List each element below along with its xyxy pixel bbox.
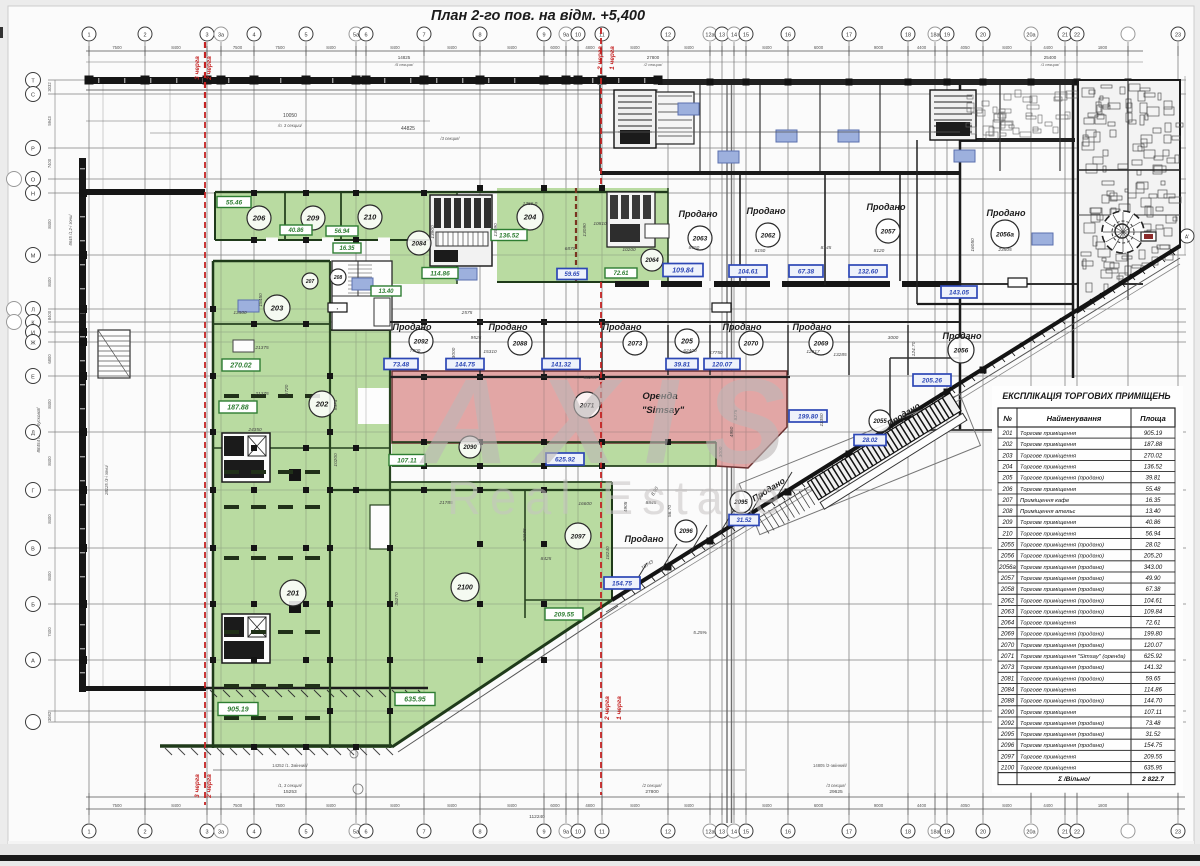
svg-text:Торгове приміщення (продано): Торгове приміщення (продано) — [1020, 554, 1104, 560]
svg-text:13090: 13090 — [493, 223, 499, 237]
svg-text:205.26: 205.26 — [921, 377, 942, 384]
svg-text:31.52: 31.52 — [1145, 732, 1161, 738]
svg-text:3а: 3а — [218, 33, 225, 39]
svg-text:Продано: Продано — [987, 208, 1026, 218]
svg-text:201: 201 — [286, 589, 300, 598]
svg-text:2071: 2071 — [1000, 654, 1014, 660]
svg-text:905.19: 905.19 — [227, 707, 249, 714]
svg-text:6: 6 — [364, 830, 367, 836]
svg-text:4400: 4400 — [1043, 803, 1053, 808]
svg-text:204: 204 — [1001, 464, 1013, 470]
svg-text:8400: 8400 — [630, 803, 640, 808]
svg-text:Торгове приміщення: Торгове приміщення — [1020, 621, 1076, 627]
svg-text:210: 210 — [363, 213, 377, 222]
svg-text:67.38: 67.38 — [1145, 587, 1161, 593]
svg-text:8: 8 — [478, 33, 481, 39]
svg-text:5943: 5943 — [47, 116, 52, 126]
svg-text:27800: 27800 — [645, 789, 659, 795]
svg-text:2: 2 — [143, 830, 146, 836]
svg-text:4400: 4400 — [917, 45, 927, 50]
svg-text:1800: 1800 — [1098, 45, 1108, 50]
svg-text:14805 /2-змінний/: 14805 /2-змінний/ — [813, 763, 848, 768]
svg-text:Г: Г — [32, 488, 35, 494]
svg-text:9000: 9000 — [874, 45, 884, 50]
svg-text:208: 208 — [333, 275, 343, 281]
svg-text:Торгове приміщення "Simsay" (о: Торгове приміщення "Simsay" (оренда) — [1020, 654, 1126, 660]
svg-text:Е: Е — [31, 374, 35, 380]
svg-text:Торгове приміщення (продано): Торгове приміщення (продано) — [1020, 565, 1104, 571]
svg-text:2064: 2064 — [644, 258, 659, 264]
svg-text:10050: 10050 — [283, 113, 297, 119]
svg-text:Торгове приміщення (продано): Торгове приміщення (продано) — [1020, 732, 1104, 738]
svg-text:270.02: 270.02 — [1143, 453, 1163, 459]
svg-text:270.02: 270.02 — [229, 363, 252, 370]
svg-text:11: 11 — [599, 830, 605, 836]
svg-text:№: № — [1003, 414, 1012, 423]
svg-text:8645 /1,2-і зони/: 8645 /1,2-і зони/ — [68, 214, 73, 246]
svg-text:8400: 8400 — [390, 45, 400, 50]
svg-text:3: 3 — [205, 33, 208, 39]
svg-text:40.86: 40.86 — [287, 228, 304, 234]
svg-text:120.07: 120.07 — [1144, 643, 1163, 649]
svg-text:8400: 8400 — [1002, 803, 1012, 808]
svg-text:4: 4 — [252, 33, 255, 39]
svg-text:Продано: Продано — [679, 209, 718, 219]
svg-text:9525: 9525 — [471, 335, 482, 341]
svg-text:Торгове приміщення: Торгове приміщення — [1020, 710, 1076, 716]
svg-text:8400: 8400 — [47, 219, 52, 229]
svg-text:3а: 3а — [218, 830, 225, 836]
svg-text:1 черга: 1 черга — [609, 46, 616, 70]
svg-text:6000: 6000 — [550, 803, 560, 808]
svg-text:А: А — [31, 658, 35, 664]
svg-text:9000: 9000 — [874, 803, 884, 808]
svg-text:3000: 3000 — [888, 335, 899, 341]
svg-text:104.61: 104.61 — [738, 268, 758, 275]
svg-text:3032: 3032 — [47, 82, 52, 92]
svg-text:59.65: 59.65 — [564, 272, 580, 278]
svg-text:2057: 2057 — [1000, 576, 1015, 582]
svg-text:36270: 36270 — [394, 592, 400, 606]
svg-text:20а: 20а — [1026, 33, 1036, 39]
svg-text:18а: 18а — [930, 830, 940, 836]
svg-text:21375: 21375 — [254, 391, 269, 397]
svg-text:Продано: Продано — [393, 322, 432, 332]
svg-text:187.88: 187.88 — [227, 405, 249, 412]
svg-text:635.95: 635.95 — [1144, 766, 1163, 772]
svg-text:203: 203 — [1001, 453, 1013, 459]
svg-text:12а: 12а — [705, 33, 715, 39]
svg-text:5.25%: 5.25% — [693, 630, 707, 636]
svg-text:8400: 8400 — [630, 45, 640, 50]
svg-text:2070: 2070 — [1000, 643, 1015, 649]
svg-text:Б: Б — [31, 602, 35, 608]
svg-text:2055: 2055 — [1000, 543, 1015, 549]
svg-text:Продано: Продано — [747, 206, 786, 216]
svg-text:625.92: 625.92 — [1144, 654, 1163, 660]
svg-text:2063: 2063 — [692, 235, 708, 242]
svg-text:Торгове приміщення: Торгове приміщення — [1020, 520, 1076, 526]
svg-text:2095: 2095 — [1000, 732, 1015, 738]
svg-text:44825: 44825 — [401, 126, 415, 132]
svg-text:2092: 2092 — [1000, 721, 1015, 727]
svg-text:7: 7 — [422, 830, 425, 836]
svg-text:28125 /3-і зони/: 28125 /3-і зони/ — [104, 464, 109, 496]
svg-text:124.70: 124.70 — [911, 341, 917, 356]
svg-text:2088: 2088 — [1000, 699, 1015, 705]
svg-text:1 черга: 1 черга — [616, 696, 623, 720]
svg-text:22335: 22335 — [522, 528, 528, 543]
svg-text:8400: 8400 — [47, 571, 52, 581]
svg-text:201: 201 — [1001, 431, 1012, 437]
svg-text:13285: 13285 — [833, 352, 847, 358]
svg-text:ЕКСПЛІКАЦІЯ ТОРГОВИХ ПРИМІЩЕНЬ: ЕКСПЛІКАЦІЯ ТОРГОВИХ ПРИМІЩЕНЬ — [1002, 391, 1170, 401]
svg-text:55.48: 55.48 — [1145, 487, 1161, 493]
svg-text:7900: 7900 — [410, 348, 421, 354]
svg-text:208: 208 — [1001, 509, 1013, 515]
svg-text:4: 4 — [252, 830, 255, 836]
svg-text:17: 17 — [846, 830, 852, 836]
svg-text:7500: 7500 — [112, 45, 122, 50]
svg-text:13.40: 13.40 — [1145, 509, 1161, 515]
svg-text:2100: 2100 — [1000, 766, 1015, 772]
svg-text:1: 1 — [87, 33, 90, 39]
svg-text:Торгове приміщення (продано): Торгове приміщення (продано) — [1020, 609, 1104, 615]
svg-text:3 черга: 3 черга — [194, 56, 201, 80]
svg-text:107.11: 107.11 — [1144, 710, 1162, 716]
svg-text:73.48: 73.48 — [1145, 721, 1161, 727]
svg-text:4400: 4400 — [917, 803, 927, 808]
svg-text:2056: 2056 — [1000, 554, 1015, 560]
svg-text:2: 2 — [143, 33, 146, 39]
svg-text:104.61: 104.61 — [1144, 598, 1162, 604]
svg-text:9а: 9а — [563, 830, 570, 836]
svg-text:Торгове приміщення: Торгове приміщення — [1020, 531, 1076, 537]
svg-text:207: 207 — [1001, 498, 1013, 504]
svg-text:Приміщення ательє: Приміщення ательє — [1020, 509, 1076, 515]
svg-text:2064: 2064 — [1000, 621, 1015, 627]
svg-text:27800: 27800 — [647, 55, 660, 60]
svg-text:72.61: 72.61 — [1145, 621, 1160, 627]
svg-text:209.55: 209.55 — [1143, 754, 1163, 760]
svg-text:8425: 8425 — [541, 556, 552, 562]
svg-text:Торгове приміщення: Торгове приміщення — [1020, 754, 1076, 760]
svg-text:План 2-го пов. на відм. +5,400: План 2-го пов. на відм. +5,400 — [431, 8, 645, 24]
svg-text:2073: 2073 — [1000, 665, 1015, 671]
svg-text:19: 19 — [944, 33, 950, 39]
svg-text:Р: Р — [31, 146, 35, 152]
svg-text:Торгове приміщення: Торгове приміщення — [1020, 687, 1076, 693]
svg-text:Н: Н — [31, 191, 35, 197]
svg-text:205: 205 — [680, 339, 693, 346]
svg-text:202: 202 — [1001, 442, 1013, 448]
svg-text:6800: 6800 — [47, 354, 52, 364]
svg-text:2069: 2069 — [813, 340, 829, 347]
svg-text:А': А' — [1185, 235, 1189, 241]
svg-text:187.88: 187.88 — [1144, 442, 1163, 448]
svg-text:В: В — [31, 546, 35, 552]
svg-text:Продано: Продано — [625, 534, 664, 544]
svg-text:2 черга: 2 черга — [206, 56, 213, 81]
svg-text:202: 202 — [315, 400, 329, 409]
svg-text:21375: 21375 — [254, 345, 269, 351]
svg-text:Σ /Вільно/: Σ /Вільно/ — [1057, 775, 1091, 783]
svg-text:22: 22 — [1074, 830, 1080, 836]
svg-text:56.94: 56.94 — [334, 229, 350, 235]
svg-text:49.90: 49.90 — [1145, 576, 1161, 582]
svg-text:Торгове приміщення: Торгове приміщення — [1020, 766, 1076, 772]
svg-text:8650: 8650 — [689, 245, 700, 251]
svg-text:4050: 4050 — [960, 45, 970, 50]
svg-text:2097: 2097 — [1000, 754, 1015, 760]
svg-text:13: 13 — [719, 830, 725, 836]
svg-text:8400: 8400 — [447, 803, 457, 808]
svg-text:7: 7 — [422, 33, 425, 39]
svg-text:2057: 2057 — [880, 228, 896, 235]
svg-text:Торгове приміщення (продано): Торгове приміщення (продано) — [1020, 699, 1104, 705]
svg-text:8400: 8400 — [47, 514, 52, 524]
svg-text:Торгове приміщення (продано): Торгове приміщення (продано) — [1020, 576, 1104, 582]
svg-text:154.75: 154.75 — [612, 580, 632, 587]
svg-text:109.84: 109.84 — [672, 268, 694, 275]
svg-text:132.60: 132.60 — [858, 268, 878, 275]
svg-text:15253: 15253 — [283, 789, 297, 795]
svg-text:18240: 18240 — [605, 546, 611, 560]
svg-text:8400: 8400 — [762, 45, 772, 50]
svg-text:114.86: 114.86 — [430, 270, 450, 277]
svg-text:14: 14 — [731, 830, 737, 836]
svg-text:/3 секция/: /3 секция/ — [439, 136, 460, 141]
svg-text:15: 15 — [743, 33, 749, 39]
svg-text:13090: 13090 — [582, 223, 588, 237]
svg-text:12: 12 — [665, 830, 671, 836]
svg-text:154.75: 154.75 — [1144, 743, 1163, 749]
svg-text:905.19: 905.19 — [1144, 431, 1163, 437]
svg-text:8400: 8400 — [47, 456, 52, 466]
svg-text:2090: 2090 — [1000, 710, 1015, 716]
svg-text:/п. 3 секции/: /п. 3 секции/ — [277, 123, 303, 128]
svg-text:О: О — [31, 177, 36, 183]
svg-text:14825: 14825 — [398, 55, 411, 60]
svg-text:67.38: 67.38 — [798, 268, 815, 275]
svg-text:Торгове приміщення: Торгове приміщення — [1020, 464, 1076, 470]
svg-text:1356.0: 1356.0 — [523, 201, 538, 207]
svg-text:/3 секция/: /3 секция/ — [825, 783, 846, 788]
svg-text:10200: 10200 — [333, 453, 339, 467]
svg-text:205: 205 — [1001, 476, 1013, 482]
svg-text:343.00: 343.00 — [1144, 565, 1163, 571]
svg-text:23: 23 — [1175, 830, 1181, 836]
svg-text:72.61: 72.61 — [613, 271, 629, 277]
svg-text:Торгове приміщення (продано): Торгове приміщення (продано) — [1020, 632, 1104, 638]
svg-text:21: 21 — [1062, 33, 1068, 39]
svg-text:Приміщення кафе: Приміщення кафе — [1020, 498, 1070, 504]
svg-text:635.95: 635.95 — [404, 697, 426, 704]
svg-text:59.65: 59.65 — [1145, 676, 1161, 682]
svg-text:2056а: 2056а — [995, 231, 1014, 238]
svg-text:Торгове приміщення: Торгове приміщення — [1020, 487, 1076, 493]
svg-text:8120: 8120 — [874, 248, 885, 254]
svg-text:23505: 23505 — [997, 247, 1012, 253]
svg-text:2081: 2081 — [1000, 676, 1014, 682]
svg-text:16050: 16050 — [970, 238, 976, 252]
svg-text:8400: 8400 — [447, 45, 457, 50]
svg-text:/5 секция/: /5 секция/ — [394, 62, 414, 67]
svg-text:25400: 25400 — [1044, 55, 1057, 60]
svg-text:Продано: Продано — [723, 322, 762, 332]
svg-text:29625: 29625 — [829, 789, 843, 795]
svg-text:4050: 4050 — [960, 803, 970, 808]
svg-text:1: 1 — [87, 830, 90, 836]
svg-text:209.55: 209.55 — [553, 611, 574, 618]
svg-text:4400: 4400 — [1043, 45, 1053, 50]
svg-text:144.70: 144.70 — [1144, 699, 1163, 705]
svg-text:112240: 112240 — [529, 814, 545, 820]
svg-text:Продано: Продано — [867, 202, 906, 212]
svg-text:2097: 2097 — [570, 533, 586, 540]
svg-text:Продано: Продано — [489, 322, 528, 332]
svg-text:13900: 13900 — [430, 225, 436, 239]
svg-text:10: 10 — [575, 33, 581, 39]
svg-text:2056: 2056 — [953, 347, 969, 354]
svg-text:2096: 2096 — [678, 529, 693, 535]
svg-text:39.81: 39.81 — [1145, 476, 1160, 482]
svg-text:3: 3 — [205, 830, 208, 836]
svg-text:205.20: 205.20 — [1143, 554, 1163, 560]
svg-text:207: 207 — [305, 279, 315, 285]
svg-text:7400: 7400 — [47, 158, 52, 168]
svg-text:Торгове приміщення (продано): Торгове приміщення (продано) — [1020, 665, 1104, 671]
svg-text:2084: 2084 — [1000, 687, 1015, 693]
svg-text:199.80: 199.80 — [1144, 632, 1163, 638]
svg-text:10810: 10810 — [593, 221, 607, 227]
svg-text:2 822.7: 2 822.7 — [1141, 776, 1164, 783]
svg-text:/2 секция/: /2 секция/ — [643, 62, 663, 67]
svg-text:7400: 7400 — [47, 627, 52, 637]
svg-text:2062: 2062 — [1000, 598, 1015, 604]
svg-text:15450: 15450 — [258, 293, 264, 307]
svg-text:209: 209 — [1001, 520, 1013, 526]
svg-text:16.35: 16.35 — [1145, 498, 1161, 504]
svg-text:10: 10 — [575, 830, 581, 836]
svg-text:15: 15 — [743, 830, 749, 836]
svg-text:Торгове приміщення (продано): Торгове приміщення (продано) — [1020, 543, 1104, 549]
svg-text:13500: 13500 — [233, 310, 247, 316]
svg-text:12: 12 — [665, 33, 671, 39]
svg-text:Торгове приміщення (продано): Торгове приміщення (продано) — [1020, 476, 1104, 482]
svg-text:7500: 7500 — [275, 45, 285, 50]
svg-text:2056а: 2056а — [998, 565, 1016, 571]
svg-text:6000: 6000 — [814, 803, 824, 808]
svg-text:7500: 7500 — [233, 803, 243, 808]
svg-text:8400: 8400 — [684, 803, 694, 808]
svg-text:3 черга: 3 черга — [194, 774, 201, 798]
svg-text:17: 17 — [846, 33, 852, 39]
svg-text:206: 206 — [252, 214, 266, 223]
svg-text:2070: 2070 — [743, 340, 759, 347]
svg-text:28.02: 28.02 — [861, 438, 878, 444]
svg-text:206: 206 — [1001, 487, 1013, 493]
svg-text:Торгове приміщення (продано): Торгове приміщення (продано) — [1020, 598, 1104, 604]
svg-text:4800: 4800 — [585, 803, 595, 808]
svg-text:14252 /1. Змінний/: 14252 /1. Змінний/ — [272, 763, 308, 768]
svg-text:4800: 4800 — [585, 45, 595, 50]
svg-text:2088: 2088 — [512, 340, 528, 347]
svg-text:/2 секция/: /2 секция/ — [641, 783, 662, 788]
svg-text:6000: 6000 — [814, 45, 824, 50]
svg-text:19: 19 — [944, 830, 950, 836]
svg-text:6870: 6870 — [565, 246, 576, 252]
svg-text:/1, 3 секция/: /1, 3 секция/ — [277, 783, 303, 788]
svg-text:2073: 2073 — [627, 340, 643, 347]
svg-text:22: 22 — [1074, 33, 1080, 39]
svg-text:8400: 8400 — [171, 45, 181, 50]
svg-text:55.46: 55.46 — [226, 199, 243, 206]
svg-text:7500: 7500 — [112, 803, 122, 808]
svg-text:8: 8 — [478, 830, 481, 836]
svg-text:5: 5 — [304, 33, 307, 39]
svg-text:13.40: 13.40 — [378, 289, 394, 295]
svg-text:9: 9 — [542, 830, 545, 836]
svg-text:Ж: Ж — [30, 340, 35, 346]
svg-text:Торгове приміщення (продано): Торгове приміщення (продано) — [1020, 587, 1104, 593]
svg-text:2 черга: 2 черга — [206, 774, 213, 799]
svg-text:2 черга: 2 черга — [604, 696, 611, 721]
svg-text:16: 16 — [785, 830, 791, 836]
svg-text:М: М — [31, 253, 36, 259]
svg-text:13: 13 — [719, 33, 725, 39]
svg-text:114.86: 114.86 — [1144, 687, 1163, 693]
svg-text:20а: 20а — [1026, 830, 1036, 836]
svg-text:204: 204 — [523, 213, 537, 222]
svg-text:8400: 8400 — [326, 45, 336, 50]
svg-text:20: 20 — [980, 830, 986, 836]
svg-text:109.84: 109.84 — [1144, 609, 1163, 615]
svg-text:141.32: 141.32 — [1144, 665, 1163, 671]
svg-text:11: 11 — [599, 33, 605, 39]
svg-text:10200: 10200 — [622, 247, 636, 253]
svg-text:Торгове приміщення (продано): Торгове приміщення (продано) — [1020, 743, 1104, 749]
svg-text:Торгове приміщення (продано): Торгове приміщення (продано) — [1020, 676, 1104, 682]
svg-text:8400: 8400 — [47, 277, 52, 287]
svg-text:5: 5 — [304, 830, 307, 836]
svg-text:8400: 8400 — [507, 45, 517, 50]
svg-text:203: 203 — [270, 304, 284, 313]
svg-text:6: 6 — [364, 33, 367, 39]
svg-text:2575: 2575 — [461, 310, 473, 316]
svg-text:Торгове приміщення (продано): Торгове приміщення (продано) — [1020, 643, 1104, 649]
svg-text:Найменування: Найменування — [1047, 414, 1102, 423]
svg-text:136.52: 136.52 — [1144, 464, 1163, 470]
svg-text:AXIS: AXIS — [419, 353, 812, 489]
svg-text:2092: 2092 — [413, 338, 429, 345]
svg-text:18: 18 — [905, 33, 911, 39]
svg-text:9575: 9575 — [333, 399, 339, 410]
svg-text:8400: 8400 — [171, 803, 181, 808]
svg-text:18а: 18а — [930, 33, 940, 39]
svg-text:8400: 8400 — [390, 803, 400, 808]
svg-text:24350: 24350 — [247, 427, 262, 433]
svg-text:23: 23 — [1175, 33, 1181, 39]
svg-text:Продано: Продано — [943, 331, 982, 341]
svg-text:2084: 2084 — [411, 240, 427, 247]
svg-text:Продано: Продано — [603, 322, 642, 332]
svg-text:Д: Д — [31, 430, 35, 436]
svg-text:20: 20 — [980, 33, 986, 39]
svg-text:16: 16 — [785, 33, 791, 39]
svg-text:2062: 2062 — [760, 232, 776, 239]
svg-text:143.05: 143.05 — [949, 289, 969, 296]
